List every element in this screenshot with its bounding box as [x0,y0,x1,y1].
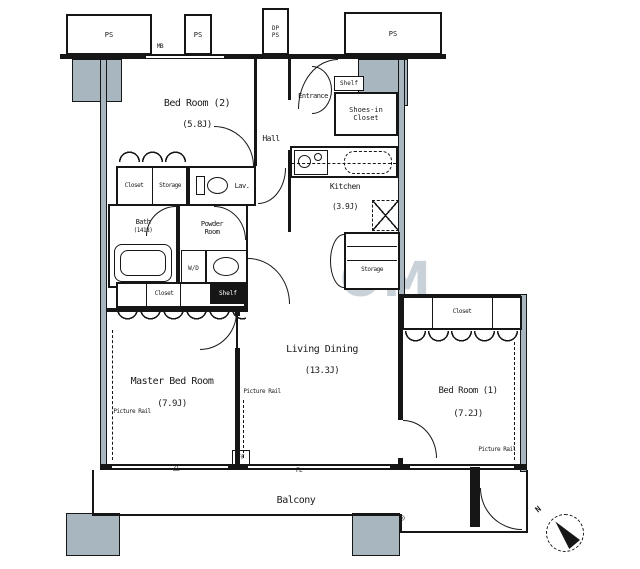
window [248,465,390,469]
divider [432,298,433,328]
door-arc [312,90,332,114]
door-arc [200,312,237,350]
picture-rail-label: Picture Rail [478,446,515,453]
wall [288,59,291,100]
balcony-partition [470,467,480,527]
closet-label: Closet [155,290,174,297]
divider [146,284,147,306]
shelf-box: Shelf [334,76,364,91]
door-arc [258,168,286,204]
column [352,513,400,556]
door-arc [330,234,344,261]
basin-icon [213,257,239,276]
bathtub-icon [120,250,166,276]
ps-label: PS [105,31,113,39]
meter-box-label: MB [157,43,163,50]
door-arc [330,261,344,288]
picture-rail-line [514,342,515,460]
toilet-icon [207,177,228,194]
north-label: N [533,505,542,515]
living-dining-size: (13.3J) [305,366,339,376]
kitchen-size: (3.9J) [332,202,358,211]
balcony-edge [400,531,528,533]
kitchen-label: Kitchen [330,182,360,191]
picture-rail-line [112,330,113,460]
column [72,59,122,102]
fridge-space [372,200,399,231]
balcony-edge [526,470,528,533]
toilet-icon [196,176,205,195]
lavatory-label: Lav. [235,182,250,190]
shelf-box: Shelf [210,283,246,304]
divider [180,284,181,306]
closet-label: Closet [453,308,472,315]
window [112,465,228,469]
dp-ps-duct: DP PS [262,8,289,55]
door-arc [480,488,522,530]
bedroom1-size: (7.2J) [453,409,483,419]
balcony-edge [92,514,402,516]
balcony-label: Balcony [277,495,316,506]
shelf-line [347,246,397,247]
shelf-line [347,260,397,261]
closet-label: Closet [125,182,144,189]
washer-dryer: W/D [181,250,206,286]
bedroom2-size: (5.8J) [182,120,212,130]
window [146,55,224,59]
door-arc [403,420,437,458]
closet-hangers-icon [118,149,188,162]
stove-burner-icon [298,155,311,168]
ps-label: PS [194,31,202,39]
floor-level-label: FL [296,467,302,474]
closet-hangers-icon [404,331,520,344]
shoes-closet: Shoes-in Closet [334,92,398,136]
storage-cabinet [344,232,400,290]
ps-label: PS [389,30,397,38]
door-arc [248,258,290,304]
door-arc [214,126,254,166]
stove-burner-icon [314,153,322,161]
ps-duct-small: PS [184,14,212,55]
sink-icon [344,151,392,174]
picture-rail-label: Picture Rail [113,408,150,415]
balcony-edge [92,470,94,516]
bedroom1-label: Bed Room (1) [438,386,497,396]
evac-hatch-icon: △ [173,461,179,473]
picture-rail-line [243,400,244,458]
floor-plan: OM PS PS DP PS PS MB Balcony △ FF FL ◎ N [0,0,640,569]
storage-label: Storage [361,266,383,273]
ps-duct-left: PS [66,14,152,55]
master-bedroom-label: Master Bed Room [131,376,214,387]
master-bedroom-size: (7.9J) [157,399,187,409]
dp-ps-label: DP PS [272,25,279,39]
living-dining-label: Living Dining [286,344,358,355]
wall [254,59,257,166]
storage-label: Storage [159,182,181,189]
divider [152,168,153,204]
ps-duct-right: PS [344,12,442,55]
window [410,465,514,469]
divider [492,298,493,328]
wall [398,458,403,466]
wall [100,59,107,470]
hall-label: Hall [262,134,279,143]
column [66,513,120,556]
wall [235,348,240,466]
picture-rail-label: Picture Rail [243,388,280,395]
bedroom2-label: Bed Room (2) [164,98,230,109]
drain-icon: ◎ [400,513,404,522]
